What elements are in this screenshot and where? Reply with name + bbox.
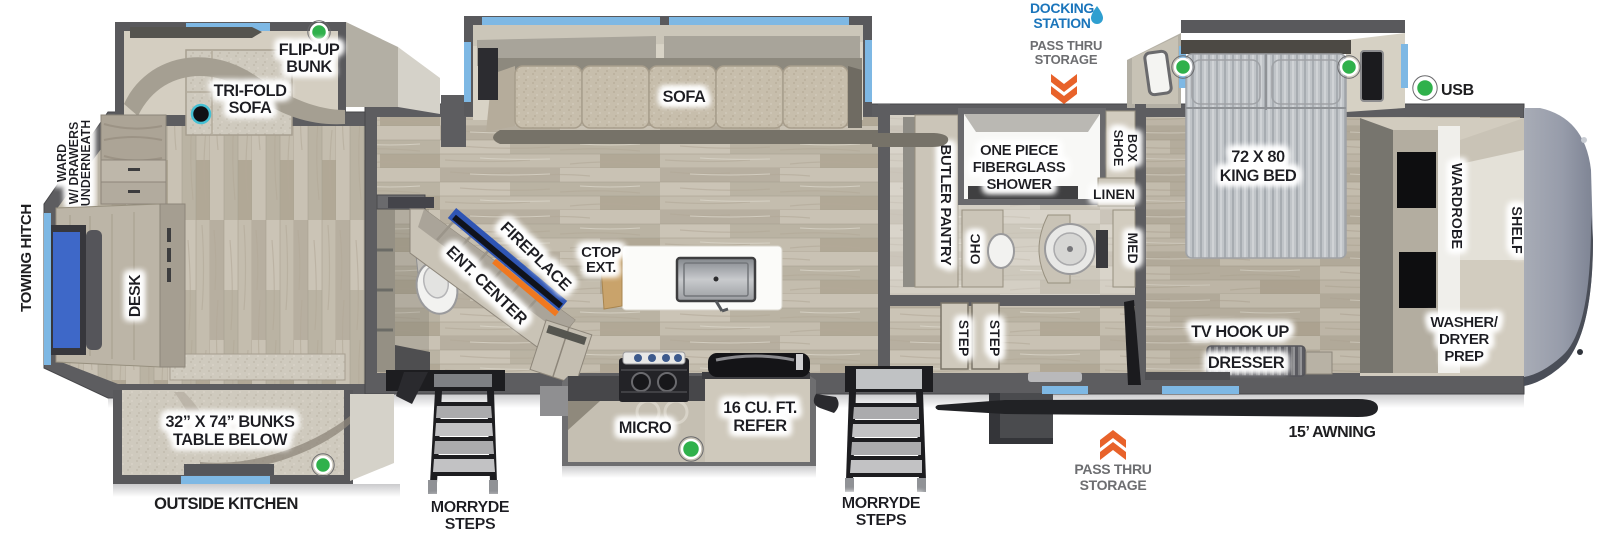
svg-text:DRESSER: DRESSER bbox=[1208, 354, 1285, 372]
svg-text:SOFA: SOFA bbox=[229, 99, 273, 117]
svg-text:TV HOOK UP: TV HOOK UP bbox=[1191, 323, 1289, 341]
svg-text:72 X 80: 72 X 80 bbox=[1231, 148, 1285, 166]
svg-text:PREP: PREP bbox=[1444, 348, 1484, 365]
svg-text:PASS THRU: PASS THRU bbox=[1030, 38, 1102, 53]
svg-text:STEP: STEP bbox=[987, 320, 1003, 357]
svg-text:MICRO: MICRO bbox=[619, 419, 672, 437]
svg-text:UNDERNEATH: UNDERNEATH bbox=[79, 120, 93, 207]
svg-text:SOFA: SOFA bbox=[663, 88, 707, 106]
svg-text:STORAGE: STORAGE bbox=[1080, 477, 1147, 493]
svg-text:TOWING HITCH: TOWING HITCH bbox=[18, 204, 35, 312]
svg-text:DOCKING: DOCKING bbox=[1030, 0, 1094, 16]
svg-text:USB: USB bbox=[1441, 82, 1474, 99]
svg-text:PASS THRU: PASS THRU bbox=[1074, 461, 1151, 477]
svg-text:32” X 74” BUNKS: 32” X 74” BUNKS bbox=[165, 413, 295, 431]
svg-text:EXT.: EXT. bbox=[586, 259, 616, 276]
svg-text:MORRYDE: MORRYDE bbox=[842, 495, 921, 512]
svg-text:TRI-FOLD: TRI-FOLD bbox=[214, 82, 288, 100]
svg-text:OHC: OHC bbox=[967, 233, 983, 264]
svg-text:KING BED: KING BED bbox=[1220, 167, 1297, 185]
svg-text:SHOWER: SHOWER bbox=[986, 176, 1052, 193]
svg-text:WASHER/: WASHER/ bbox=[1430, 314, 1498, 331]
svg-text:FLIP-UP: FLIP-UP bbox=[279, 41, 340, 59]
svg-text:STEPS: STEPS bbox=[856, 512, 907, 529]
svg-text:15’ AWNING: 15’ AWNING bbox=[1289, 424, 1376, 441]
svg-text:STATION: STATION bbox=[1033, 15, 1090, 31]
svg-text:STEP: STEP bbox=[956, 320, 972, 357]
svg-text:DESK: DESK bbox=[127, 274, 144, 317]
svg-text:ONE PIECE: ONE PIECE bbox=[980, 142, 1058, 159]
svg-text:FIBERGLASS: FIBERGLASS bbox=[973, 159, 1066, 176]
svg-text:DRYER: DRYER bbox=[1439, 331, 1490, 348]
svg-text:LINEN: LINEN bbox=[1093, 186, 1135, 202]
svg-text:STORAGE: STORAGE bbox=[1035, 52, 1098, 67]
svg-text:BUTLER PANTRY: BUTLER PANTRY bbox=[937, 144, 954, 265]
svg-text:SHOE: SHOE bbox=[1111, 130, 1126, 167]
svg-text:16 CU. FT.: 16 CU. FT. bbox=[723, 399, 797, 417]
svg-text:MED: MED bbox=[1125, 232, 1141, 263]
svg-text:BOX: BOX bbox=[1125, 134, 1140, 163]
svg-text:TABLE BELOW: TABLE BELOW bbox=[173, 431, 288, 449]
svg-text:REFER: REFER bbox=[733, 417, 787, 435]
svg-text:BUNK: BUNK bbox=[286, 58, 332, 76]
svg-text:SHELF: SHELF bbox=[1508, 206, 1524, 254]
svg-text:STEPS: STEPS bbox=[445, 516, 496, 533]
svg-text:OUTSIDE KITCHEN: OUTSIDE KITCHEN bbox=[154, 495, 298, 513]
svg-text:WARDROBE: WARDROBE bbox=[1448, 163, 1464, 250]
svg-text:MORRYDE: MORRYDE bbox=[431, 499, 510, 516]
